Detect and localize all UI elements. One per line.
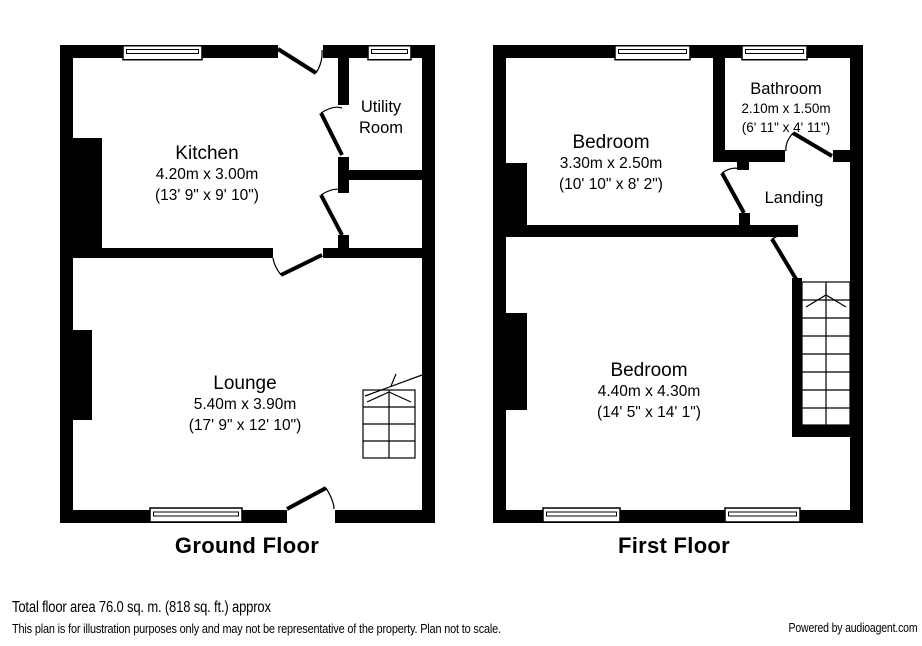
utility-bottom-wall bbox=[338, 170, 422, 180]
room-name: Bedroom bbox=[597, 360, 701, 381]
window-icon bbox=[543, 508, 620, 522]
window-icon bbox=[742, 46, 807, 60]
window-icon bbox=[615, 46, 690, 60]
bedroom1-door-stub-bottom bbox=[739, 213, 750, 225]
lobby-door-stub-bottom bbox=[338, 235, 349, 248]
kitchen-wall-pier bbox=[73, 138, 102, 248]
stairs-break-tick bbox=[391, 374, 396, 386]
ground-floor-title: Ground Floor bbox=[175, 533, 319, 559]
bedroom-divider-wall bbox=[506, 225, 798, 237]
room-dims-imperial: (6' 11" x 4' 11") bbox=[741, 118, 830, 137]
window-icon bbox=[725, 508, 800, 522]
utility-door-icon bbox=[321, 107, 342, 155]
bathroom-left-wall bbox=[713, 58, 725, 162]
room-dims-imperial: (17' 9" x 12' 10") bbox=[189, 415, 302, 436]
kitchen-label: Kitchen 4.20m x 3.00m (13' 9" x 9' 10") bbox=[155, 143, 259, 206]
window-icon bbox=[368, 46, 411, 60]
room-dims-metric: 5.40m x 3.90m bbox=[189, 394, 302, 415]
utility-left-wall bbox=[338, 58, 349, 105]
window-icon bbox=[150, 508, 242, 522]
room-name: Lounge bbox=[189, 373, 302, 394]
bedroom2-label: Bedroom 4.40m x 4.30m (14' 5" x 14' 1") bbox=[597, 360, 701, 423]
lounge-door-opening bbox=[287, 510, 335, 523]
disclaimer-text: This plan is for illustration purposes o… bbox=[12, 621, 501, 636]
staircase bbox=[363, 374, 422, 458]
front-lounge-door-icon bbox=[287, 488, 334, 509]
utility-room-label: Utility Room bbox=[359, 97, 403, 139]
room-dims-metric: 2.10m x 1.50m bbox=[741, 99, 830, 118]
lobby-door-icon bbox=[321, 189, 342, 235]
bedroom1-door-icon bbox=[722, 168, 744, 213]
room-name: Landing bbox=[765, 188, 824, 209]
bedroom2-chimney-breast bbox=[506, 313, 527, 410]
bathroom-bottom-wall bbox=[713, 150, 785, 162]
room-name: Kitchen bbox=[155, 143, 259, 164]
room-name: Bathroom bbox=[741, 80, 830, 99]
bedroom1-label: Bedroom 3.30m x 2.50m (10' 10" x 8' 2") bbox=[559, 132, 663, 195]
room-name: Utility bbox=[359, 97, 403, 118]
total-floor-area-text: Total floor area 76.0 sq. m. (818 sq. ft… bbox=[12, 599, 271, 617]
room-dims-imperial: (13' 9" x 9' 10") bbox=[155, 185, 259, 206]
room-dims-imperial: (14' 5" x 14' 1") bbox=[597, 402, 701, 423]
bedroom2-door-icon bbox=[772, 234, 796, 279]
landing-label: Landing bbox=[765, 188, 824, 209]
room-name: Room bbox=[359, 118, 403, 139]
room-dims-metric: 4.40m x 4.30m bbox=[597, 381, 701, 402]
lobby-door-stub-top bbox=[338, 180, 349, 193]
bathroom-label: Bathroom 2.10m x 1.50m (6' 11" x 4' 11") bbox=[741, 80, 830, 137]
lounge-chimney-breast bbox=[73, 330, 92, 420]
powered-by-text: Powered by audioagent.com bbox=[788, 621, 917, 635]
room-dims-metric: 3.30m x 2.50m bbox=[559, 153, 663, 174]
utility-door-stub bbox=[338, 157, 349, 170]
window-icon bbox=[123, 46, 202, 60]
lounge-label: Lounge 5.40m x 3.90m (17' 9" x 12' 10") bbox=[189, 373, 302, 436]
room-name: Bedroom bbox=[559, 132, 663, 153]
bedroom1-wall-pier bbox=[506, 163, 527, 225]
bathroom-door-stub bbox=[833, 150, 850, 162]
stair-bottom-wall bbox=[792, 425, 850, 437]
stair-enclosure-wall bbox=[792, 278, 802, 433]
staircase bbox=[802, 282, 850, 425]
kitchen-lounge-wall-right bbox=[323, 248, 422, 258]
kitchen-lounge-wall-left bbox=[73, 248, 273, 258]
floorplan-canvas: Kitchen 4.20m x 3.00m (13' 9" x 9' 10") … bbox=[0, 0, 922, 646]
first-floor-title: First Floor bbox=[618, 533, 730, 559]
room-dims-metric: 4.20m x 3.00m bbox=[155, 164, 259, 185]
kitchen-lounge-door-icon bbox=[273, 255, 322, 275]
room-dims-imperial: (10' 10" x 8' 2") bbox=[559, 174, 663, 195]
doors bbox=[273, 49, 342, 509]
